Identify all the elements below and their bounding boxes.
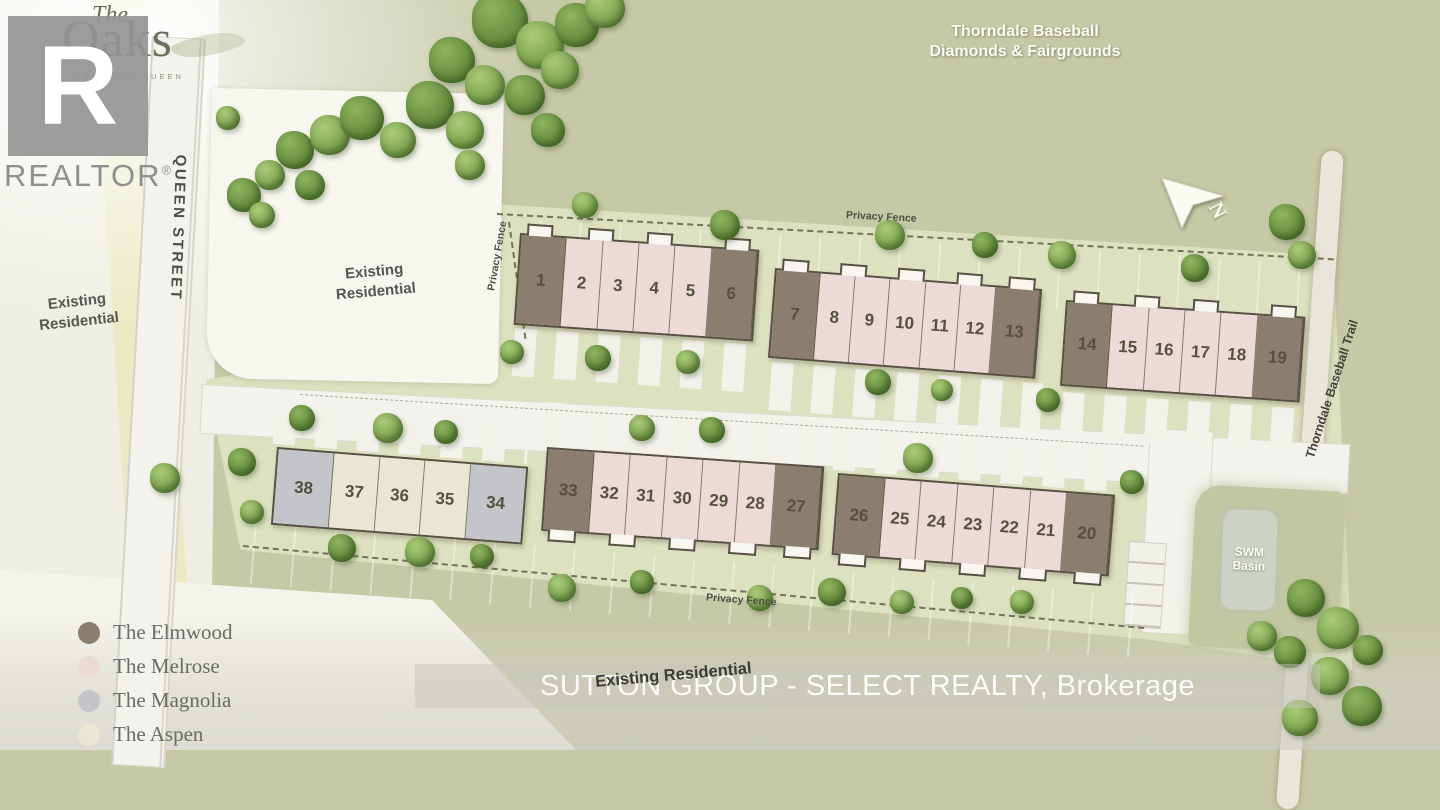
lot-number: 36	[389, 485, 409, 506]
tree	[1269, 204, 1305, 240]
lot-number: 8	[829, 307, 840, 328]
park-title-line1: Thorndale Baseball	[880, 22, 1170, 42]
tree	[429, 37, 475, 83]
privacy-fence-label-top: Privacy Fence	[846, 209, 917, 225]
lot-number: 34	[485, 493, 505, 514]
lot-unit-28: 28	[735, 463, 777, 545]
lot-number: 27	[786, 496, 806, 517]
lot-unit-32: 32	[589, 452, 631, 534]
tree	[472, 0, 528, 48]
lot-number: 24	[926, 511, 946, 532]
north-arrow: N	[1158, 172, 1258, 242]
lot-unit-34: 34	[465, 464, 526, 542]
lot-unit-31: 31	[625, 455, 667, 537]
registered-mark: ®	[162, 163, 174, 178]
legend-label-melrose: The Melrose	[113, 654, 220, 679]
lot-unit-35: 35	[420, 461, 471, 538]
porch-stub	[728, 542, 756, 556]
lot-unit-22: 22	[989, 487, 1032, 568]
lot-unit-18: 18	[1216, 313, 1258, 397]
lot-unit-33: 33	[543, 449, 594, 532]
lot-number: 22	[999, 517, 1019, 538]
lot-unit-15: 15	[1107, 305, 1149, 389]
swm-basin-label-2: Basin	[1232, 559, 1265, 574]
tree	[505, 75, 545, 115]
lot-number: 16	[1154, 339, 1174, 360]
lot-number: 11	[930, 315, 949, 336]
tree	[555, 3, 599, 47]
legend: The ElmwoodThe MelroseThe MagnoliaThe As…	[78, 620, 338, 756]
lot-number: 14	[1077, 334, 1097, 355]
lot-unit-14: 14	[1062, 302, 1113, 387]
porch-stub	[898, 558, 926, 572]
park-title: Thorndale Baseball Diamonds & Fairground…	[880, 22, 1170, 62]
lot-unit-36: 36	[375, 457, 426, 534]
lot-number: 29	[709, 490, 729, 511]
tree	[240, 500, 264, 524]
legend-item-aspen: The Aspen	[78, 722, 338, 747]
oak-leaf-icon	[170, 19, 246, 70]
lot-unit-23: 23	[952, 484, 995, 565]
porch-stub	[838, 553, 866, 567]
driveways-block1	[512, 328, 760, 393]
lot-unit-26: 26	[834, 475, 885, 556]
porch-stub	[783, 546, 811, 560]
lot-number: 23	[963, 514, 983, 535]
tree	[531, 113, 565, 147]
legend-swatch-elmwood	[78, 622, 100, 644]
lot-unit-16: 16	[1144, 308, 1186, 392]
legend-label-elmwood: The Elmwood	[113, 620, 233, 645]
branding-area: The Oaks ON UPPER QUEEN R REALTOR®	[0, 0, 230, 215]
lot-number: 37	[344, 481, 364, 502]
lot-number: 32	[599, 483, 619, 504]
tree	[1342, 686, 1382, 726]
lot-unit-25: 25	[879, 479, 922, 560]
tree	[1353, 635, 1383, 665]
lot-number: 26	[849, 505, 869, 526]
legend-swatch-magnolia	[78, 690, 100, 712]
lot-number: 20	[1076, 523, 1096, 544]
lot-number: 33	[558, 480, 578, 501]
lot-number: 7	[789, 304, 800, 325]
realtor-wordmark: REALTOR®	[4, 158, 173, 194]
lot-number: 30	[672, 488, 692, 509]
lot-number: 35	[435, 489, 455, 510]
lot-unit-30: 30	[662, 457, 704, 539]
porch-stub	[958, 563, 986, 577]
lot-unit-19: 19	[1252, 315, 1303, 400]
lot-number: 18	[1227, 344, 1247, 365]
tree	[572, 192, 598, 218]
legend-label-magnolia: The Magnolia	[113, 688, 231, 713]
realtor-wordmark-text: REALTOR	[4, 158, 162, 193]
lot-unit-37: 37	[329, 454, 380, 531]
lot-number: 17	[1190, 342, 1210, 363]
lot-unit-38: 38	[273, 449, 335, 527]
tree	[516, 21, 564, 69]
watermark-text: SUTTON GROUP - SELECT REALTY, Brokerage	[415, 664, 1320, 708]
porch-stub	[1073, 572, 1101, 586]
tree	[541, 51, 579, 89]
tree	[585, 0, 625, 28]
lot-number: 12	[965, 318, 985, 339]
porch-stub	[608, 534, 636, 548]
lot-number: 21	[1036, 520, 1056, 541]
lot-number: 28	[745, 493, 765, 514]
rear-lot-lines-row2	[250, 522, 1142, 658]
lot-number: 19	[1267, 347, 1287, 368]
legend-swatch-melrose	[78, 656, 100, 678]
lot-unit-21: 21	[1025, 490, 1068, 571]
lot-number: 15	[1118, 337, 1138, 358]
realtor-logo-icon: R	[8, 16, 148, 156]
lot-number: 25	[890, 508, 910, 529]
legend-item-elmwood: The Elmwood	[78, 620, 338, 645]
tree	[228, 448, 256, 476]
lot-number: 38	[293, 478, 313, 499]
lot-unit-20: 20	[1061, 493, 1112, 574]
legend-item-melrose: The Melrose	[78, 654, 338, 679]
legend-label-aspen: The Aspen	[113, 722, 203, 747]
lot-number: 13	[1004, 321, 1024, 342]
realtor-logo-r: R	[38, 30, 119, 142]
lot-number: 10	[894, 313, 914, 334]
porch-stub	[1019, 568, 1047, 582]
porch-stub	[548, 529, 576, 543]
legend-swatch-aspen	[78, 724, 100, 746]
lot-unit-24: 24	[916, 482, 959, 563]
lot-number: 9	[864, 310, 875, 331]
existing-residential-block	[206, 88, 504, 384]
lot-unit-27: 27	[771, 465, 822, 548]
existing-residential-left-label: Existing Residential	[26, 287, 130, 336]
lot-unit-29: 29	[698, 460, 740, 542]
lot-unit-17: 17	[1180, 310, 1222, 394]
lot-number: 31	[636, 485, 656, 506]
porch-stub	[668, 538, 696, 552]
park-title-line2: Diamonds & Fairgrounds	[880, 42, 1170, 62]
swm-basin: SWM Basin	[1220, 509, 1277, 611]
legend-item-magnolia: The Magnolia	[78, 688, 338, 713]
